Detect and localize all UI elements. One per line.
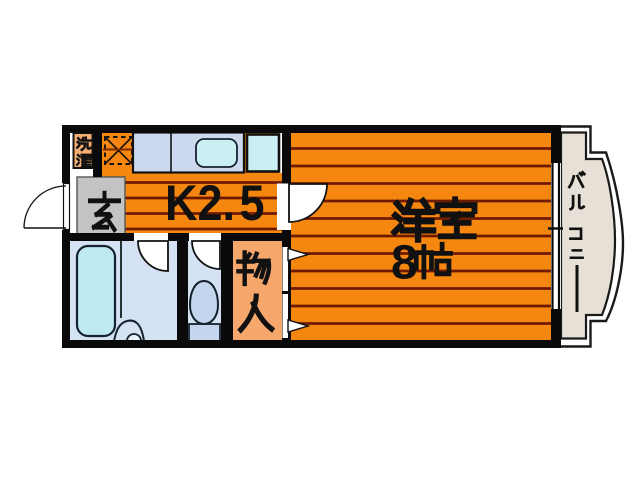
svg-text:8: 8 (391, 237, 418, 290)
svg-text:K2.5: K2.5 (165, 176, 265, 232)
